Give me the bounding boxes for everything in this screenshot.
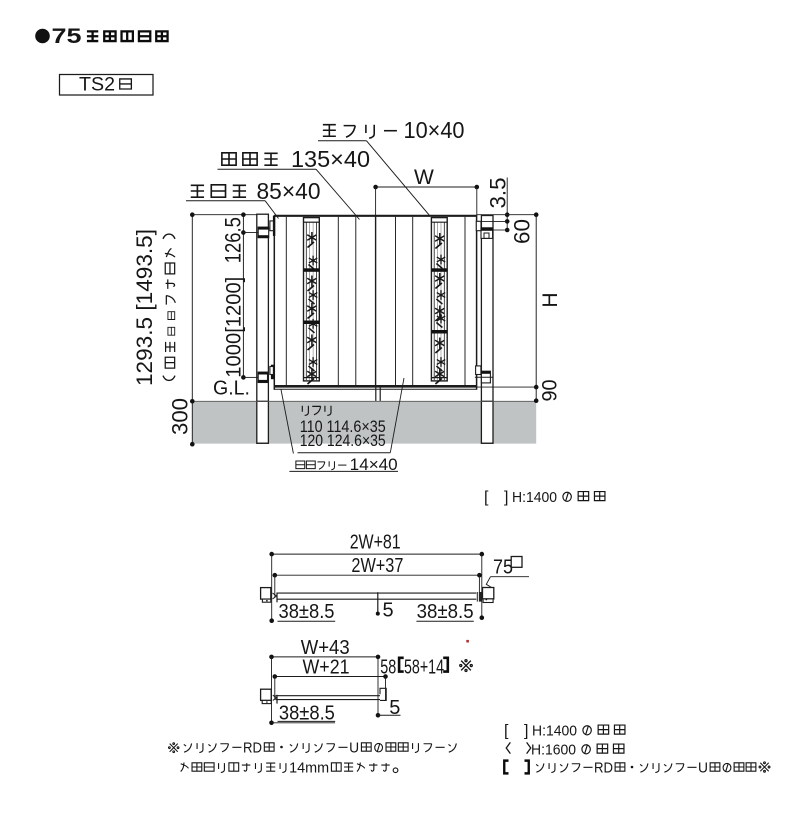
svg-text:RD: RD	[243, 740, 262, 757]
svg-text:1000[1200]: 1000[1200]	[223, 277, 246, 378]
svg-text:W+21: W+21	[303, 656, 350, 678]
svg-text:300: 300	[168, 398, 193, 435]
svg-text:H:1400: H:1400	[532, 723, 577, 740]
svg-text:14mm: 14mm	[289, 760, 329, 777]
svg-text:]: ]	[524, 723, 528, 740]
svg-text:W: W	[414, 166, 434, 189]
svg-text:58+14: 58+14	[404, 657, 444, 679]
svg-text:3.5: 3.5	[486, 178, 511, 209]
svg-text:[: [	[484, 489, 489, 506]
svg-text:120 124.6×35: 120 124.6×35	[300, 431, 386, 450]
svg-text:75: 75	[493, 556, 513, 579]
svg-text:1293.5 [1493.5]: 1293.5 [1493.5]	[132, 229, 157, 386]
svg-text:75: 75	[52, 25, 82, 48]
svg-text:H: H	[539, 292, 562, 307]
svg-text:58: 58	[380, 657, 396, 679]
svg-text:RD: RD	[594, 760, 613, 777]
svg-text:90: 90	[539, 380, 562, 402]
svg-text:5: 5	[383, 600, 394, 622]
svg-text:2W+37: 2W+37	[351, 555, 403, 577]
svg-text:2W+81: 2W+81	[350, 532, 401, 554]
svg-text:85×40: 85×40	[257, 178, 321, 204]
svg-text:H:1400: H:1400	[512, 489, 557, 506]
svg-text:126.5: 126.5	[221, 217, 246, 263]
svg-text:38±8.5: 38±8.5	[417, 601, 474, 623]
svg-text:G.L.: G.L.	[213, 377, 250, 400]
svg-text:U: U	[698, 760, 708, 777]
svg-text:H:1600: H:1600	[531, 742, 576, 759]
svg-text:U: U	[349, 740, 359, 757]
svg-text:135×40: 135×40	[291, 146, 370, 172]
svg-text:[: [	[504, 723, 509, 740]
svg-text:38±8.5: 38±8.5	[279, 601, 335, 623]
svg-text:]: ]	[504, 489, 508, 506]
svg-text:10×40: 10×40	[404, 117, 465, 143]
svg-text:60: 60	[510, 219, 535, 244]
svg-text:TS2: TS2	[79, 75, 115, 96]
